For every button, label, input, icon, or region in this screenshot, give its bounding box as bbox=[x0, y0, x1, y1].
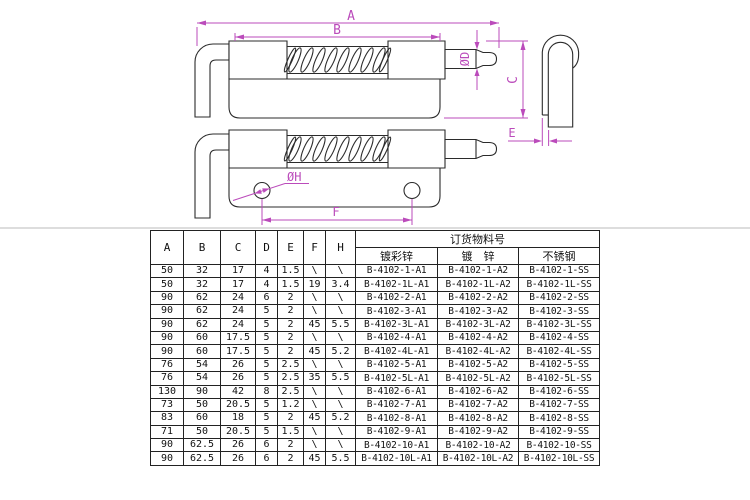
dim-value: 17.5 bbox=[221, 345, 256, 358]
dim-value: 32 bbox=[184, 265, 221, 278]
dim-value: \ bbox=[304, 305, 326, 318]
spec-row: 50321741.5\\B-4102-1-A1B-4102-1-A2B-4102… bbox=[151, 265, 600, 278]
part-number: B-4102-1-SS bbox=[519, 265, 600, 278]
dim-label-F: F bbox=[332, 205, 339, 219]
part-number: B-4102-7-A1 bbox=[356, 398, 438, 411]
part-number: B-4102-3-A1 bbox=[356, 305, 438, 318]
dim-value: 8 bbox=[256, 385, 278, 398]
part-number: B-4102-5L-A1 bbox=[356, 372, 438, 385]
dim-value: 76 bbox=[151, 372, 184, 385]
dim-value: \ bbox=[326, 291, 356, 304]
dim-label-E: E bbox=[508, 126, 515, 140]
dim-value: 50 bbox=[151, 265, 184, 278]
dim-value: \ bbox=[326, 331, 356, 344]
part-number: B-4102-5L-SS bbox=[519, 372, 600, 385]
dim-value: 2.5 bbox=[278, 385, 304, 398]
spec-row: 50321741.5193.4B-4102-1L-A1B-4102-1L-A2B… bbox=[151, 278, 600, 291]
dim-value: 50 bbox=[184, 398, 221, 411]
dim-value: 4 bbox=[256, 278, 278, 291]
dim-value: 130 bbox=[151, 385, 184, 398]
dim-value: 90 bbox=[184, 385, 221, 398]
dim-value: 5 bbox=[256, 412, 278, 425]
part-number: B-4102-1-A1 bbox=[356, 265, 438, 278]
top-view bbox=[195, 41, 497, 118]
dim-value: 73 bbox=[151, 398, 184, 411]
part-number: B-4102-7-A2 bbox=[438, 398, 519, 411]
dim-value: 83 bbox=[151, 412, 184, 425]
part-number: B-4102-9-A2 bbox=[438, 425, 519, 438]
dim-value: 60 bbox=[184, 412, 221, 425]
dim-value: 6 bbox=[256, 452, 278, 465]
spec-row: 90622462\\B-4102-2-A1B-4102-2-A2B-4102-2… bbox=[151, 291, 600, 304]
dim-header-f: F bbox=[304, 231, 326, 265]
part-number: B-4102-6-A2 bbox=[438, 385, 519, 398]
finish-header-color-zinc: 镀彩锌 bbox=[356, 248, 438, 265]
part-number: B-4102-3-A2 bbox=[438, 305, 519, 318]
dim-value: 6 bbox=[256, 439, 278, 452]
finish-header-stainless: 不锈钢 bbox=[519, 248, 600, 265]
part-number: B-4102-4L-SS bbox=[519, 345, 600, 358]
dim-value: 24 bbox=[221, 305, 256, 318]
dim-value: 1.5 bbox=[278, 265, 304, 278]
mounting-hole-right bbox=[404, 183, 420, 199]
spec-row: 906017.552455.2B-4102-4L-A1B-4102-4L-A2B… bbox=[151, 345, 600, 358]
dim-value: 2 bbox=[278, 291, 304, 304]
dim-value: \ bbox=[326, 305, 356, 318]
part-number: B-4102-10L-A1 bbox=[356, 452, 438, 465]
part-number: B-4102-8-A1 bbox=[356, 412, 438, 425]
dim-value: \ bbox=[304, 331, 326, 344]
part-number: B-4102-3-SS bbox=[519, 305, 600, 318]
dim-value: 19 bbox=[304, 278, 326, 291]
dim-value: 62 bbox=[184, 291, 221, 304]
part-number: B-4102-10L-A2 bbox=[438, 452, 519, 465]
dim-value: 4 bbox=[256, 265, 278, 278]
part-number: B-4102-10-SS bbox=[519, 439, 600, 452]
dim-value: 26 bbox=[221, 372, 256, 385]
dim-value: 24 bbox=[221, 291, 256, 304]
part-number: B-4102-8-SS bbox=[519, 412, 600, 425]
dim-value: \ bbox=[304, 265, 326, 278]
side-view bbox=[542, 35, 578, 127]
dim-value: 90 bbox=[151, 318, 184, 331]
dim-header-a: A bbox=[151, 231, 184, 265]
dim-value: 5 bbox=[256, 318, 278, 331]
dim-value: 62.5 bbox=[184, 439, 221, 452]
dim-value: 2 bbox=[278, 318, 304, 331]
dim-value: 17.5 bbox=[221, 331, 256, 344]
dim-value: 45 bbox=[304, 318, 326, 331]
part-number: B-4102-10L-SS bbox=[519, 452, 600, 465]
dim-value: 5 bbox=[256, 398, 278, 411]
dim-value: 60 bbox=[184, 345, 221, 358]
dim-value: 90 bbox=[151, 345, 184, 358]
dim-value: 5.5 bbox=[326, 318, 356, 331]
spec-row: 90622452\\B-4102-3-A1B-4102-3-A2B-4102-3… bbox=[151, 305, 600, 318]
dim-value: 62.5 bbox=[184, 452, 221, 465]
dim-value: 42 bbox=[221, 385, 256, 398]
dim-value: 2 bbox=[278, 345, 304, 358]
dim-header-h: H bbox=[326, 231, 356, 265]
dim-value: 1.5 bbox=[278, 278, 304, 291]
dim-value: 2 bbox=[278, 452, 304, 465]
part-number: B-4102-8-A2 bbox=[438, 412, 519, 425]
dim-value: 2 bbox=[278, 412, 304, 425]
dim-body-length: B bbox=[235, 23, 440, 41]
spec-row: 83601852455.2B-4102-8-A1B-4102-8-A2B-410… bbox=[151, 412, 600, 425]
part-number: B-4102-7-SS bbox=[519, 398, 600, 411]
handle-outline bbox=[195, 44, 229, 117]
dim-value: 32 bbox=[184, 278, 221, 291]
dim-value: 5 bbox=[256, 305, 278, 318]
dim-value: 5.2 bbox=[326, 345, 356, 358]
dim-value: \ bbox=[326, 398, 356, 411]
dim-value: 45 bbox=[304, 412, 326, 425]
dim-header-d: D bbox=[256, 231, 278, 265]
dim-value: \ bbox=[326, 265, 356, 278]
part-number: B-4102-4L-A2 bbox=[438, 345, 519, 358]
dim-value: \ bbox=[304, 385, 326, 398]
side-rod bbox=[548, 42, 572, 127]
dim-value: 5.2 bbox=[326, 412, 356, 425]
part-number: B-4102-3L-A2 bbox=[438, 318, 519, 331]
spec-row: 9062.52662\\B-4102-10-A1B-4102-10-A2B-41… bbox=[151, 439, 600, 452]
bottom-view bbox=[195, 130, 497, 218]
dim-value: 2.5 bbox=[278, 372, 304, 385]
spec-row: 76542652.5355.5B-4102-5L-A1B-4102-5L-A2B… bbox=[151, 372, 600, 385]
dim-value: 54 bbox=[184, 358, 221, 371]
dim-value: \ bbox=[304, 398, 326, 411]
dim-value: 90 bbox=[151, 331, 184, 344]
dim-value: 62 bbox=[184, 318, 221, 331]
dim-value: 90 bbox=[151, 291, 184, 304]
dim-label-B: B bbox=[333, 23, 341, 38]
part-number: B-4102-5-A2 bbox=[438, 358, 519, 371]
part-number: B-4102-2-SS bbox=[519, 291, 600, 304]
spec-row: 76542652.5\\B-4102-5-A1B-4102-5-A2B-4102… bbox=[151, 358, 600, 371]
part-number: B-4102-9-A1 bbox=[356, 425, 438, 438]
spec-row: 735020.551.2\\B-4102-7-A1B-4102-7-A2B-41… bbox=[151, 398, 600, 411]
dim-value: \ bbox=[304, 425, 326, 438]
part-number: B-4102-6-A1 bbox=[356, 385, 438, 398]
part-number: B-4102-10-A1 bbox=[356, 439, 438, 452]
dim-value: 20.5 bbox=[221, 425, 256, 438]
part-number: B-4102-2-A2 bbox=[438, 291, 519, 304]
dim-label-OD: ØD bbox=[458, 52, 472, 66]
part-number: B-4102-4-A2 bbox=[438, 331, 519, 344]
dim-value: 5 bbox=[256, 358, 278, 371]
dim-value: 71 bbox=[151, 425, 184, 438]
dim-value: 2.5 bbox=[278, 358, 304, 371]
order-number-header: 订货物料号 bbox=[356, 231, 600, 248]
dim-value: 2 bbox=[278, 331, 304, 344]
bolt-pin bbox=[445, 140, 497, 159]
dim-value: 2 bbox=[278, 305, 304, 318]
spec-row: 715020.551.5\\B-4102-9-A1B-4102-9-A2B-41… bbox=[151, 425, 600, 438]
part-number: B-4102-4L-A1 bbox=[356, 345, 438, 358]
handle-outline bbox=[195, 134, 229, 218]
dim-value: \ bbox=[326, 439, 356, 452]
part-number: B-4102-1L-A1 bbox=[356, 278, 438, 291]
dim-value: 17 bbox=[221, 278, 256, 291]
dim-value: 45 bbox=[304, 345, 326, 358]
dim-value: 90 bbox=[151, 305, 184, 318]
dim-value: 90 bbox=[151, 439, 184, 452]
dim-value: \ bbox=[304, 439, 326, 452]
dim-value: 26 bbox=[221, 452, 256, 465]
dim-value: 90 bbox=[151, 452, 184, 465]
dim-header-e: E bbox=[278, 231, 304, 265]
dim-value: 17 bbox=[221, 265, 256, 278]
dim-value: 26 bbox=[221, 358, 256, 371]
dim-value: 50 bbox=[184, 425, 221, 438]
spec-row: 130904282.5\\B-4102-6-A1B-4102-6-A2B-410… bbox=[151, 385, 600, 398]
dim-header-c: C bbox=[221, 231, 256, 265]
header-row-1: A B C D E F H 订货物料号 bbox=[151, 231, 600, 248]
dim-value: 5 bbox=[256, 345, 278, 358]
part-number: B-4102-2-A1 bbox=[356, 291, 438, 304]
dim-value: 1.2 bbox=[278, 398, 304, 411]
dim-header-b: B bbox=[184, 231, 221, 265]
dim-value: 6 bbox=[256, 291, 278, 304]
dim-value: 26 bbox=[221, 439, 256, 452]
dim-value: 5.5 bbox=[326, 372, 356, 385]
spec-table: A B C D E F H 订货物料号 镀彩锌 镀 锌 不锈钢 50321741… bbox=[150, 230, 600, 466]
dim-value: 24 bbox=[221, 318, 256, 331]
part-number: B-4102-3L-A1 bbox=[356, 318, 438, 331]
dim-value: 50 bbox=[151, 278, 184, 291]
dim-value: 20.5 bbox=[221, 398, 256, 411]
dim-value: \ bbox=[304, 291, 326, 304]
dim-value: 5 bbox=[256, 425, 278, 438]
part-number: B-4102-1L-SS bbox=[519, 278, 600, 291]
part-number: B-4102-9-SS bbox=[519, 425, 600, 438]
dim-value: \ bbox=[326, 425, 356, 438]
part-number: B-4102-5L-A2 bbox=[438, 372, 519, 385]
technical-drawing: A B C bbox=[0, 0, 750, 232]
dim-label-OH: ØH bbox=[287, 170, 301, 184]
dim-value: \ bbox=[304, 358, 326, 371]
finish-header-zinc: 镀 锌 bbox=[438, 248, 519, 265]
part-number: B-4102-1L-A2 bbox=[438, 278, 519, 291]
part-number: B-4102-10-A2 bbox=[438, 439, 519, 452]
spec-row: 9062.52662455.5B-4102-10L-A1B-4102-10L-A… bbox=[151, 452, 600, 465]
dim-value: 1.5 bbox=[278, 425, 304, 438]
part-number: B-4102-5-SS bbox=[519, 358, 600, 371]
part-number: B-4102-4-A1 bbox=[356, 331, 438, 344]
dim-value: 54 bbox=[184, 372, 221, 385]
spec-row: 90622452455.5B-4102-3L-A1B-4102-3L-A2B-4… bbox=[151, 318, 600, 331]
dim-value: 5.5 bbox=[326, 452, 356, 465]
page: A B C bbox=[0, 0, 750, 500]
dim-value: 5 bbox=[256, 372, 278, 385]
part-number: B-4102-6-SS bbox=[519, 385, 600, 398]
plate-outline bbox=[229, 79, 440, 118]
dim-label-A: A bbox=[347, 9, 355, 24]
part-number: B-4102-3L-SS bbox=[519, 318, 600, 331]
dim-value: \ bbox=[326, 358, 356, 371]
part-number: B-4102-4-SS bbox=[519, 331, 600, 344]
dim-value: \ bbox=[326, 385, 356, 398]
dim-label-C: C bbox=[506, 76, 521, 84]
dim-value: 18 bbox=[221, 412, 256, 425]
dim-value: 62 bbox=[184, 305, 221, 318]
part-number: B-4102-1-A2 bbox=[438, 265, 519, 278]
spec-table-body: 50321741.5\\B-4102-1-A1B-4102-1-A2B-4102… bbox=[151, 265, 600, 466]
dim-value: 35 bbox=[304, 372, 326, 385]
dim-value: 45 bbox=[304, 452, 326, 465]
dim-value: 60 bbox=[184, 331, 221, 344]
dim-value: 76 bbox=[151, 358, 184, 371]
dim-value: 3.4 bbox=[326, 278, 356, 291]
part-number: B-4102-5-A1 bbox=[356, 358, 438, 371]
spec-row: 906017.552\\B-4102-4-A1B-4102-4-A2B-4102… bbox=[151, 331, 600, 344]
dim-value: 5 bbox=[256, 331, 278, 344]
dim-value: 2 bbox=[278, 439, 304, 452]
